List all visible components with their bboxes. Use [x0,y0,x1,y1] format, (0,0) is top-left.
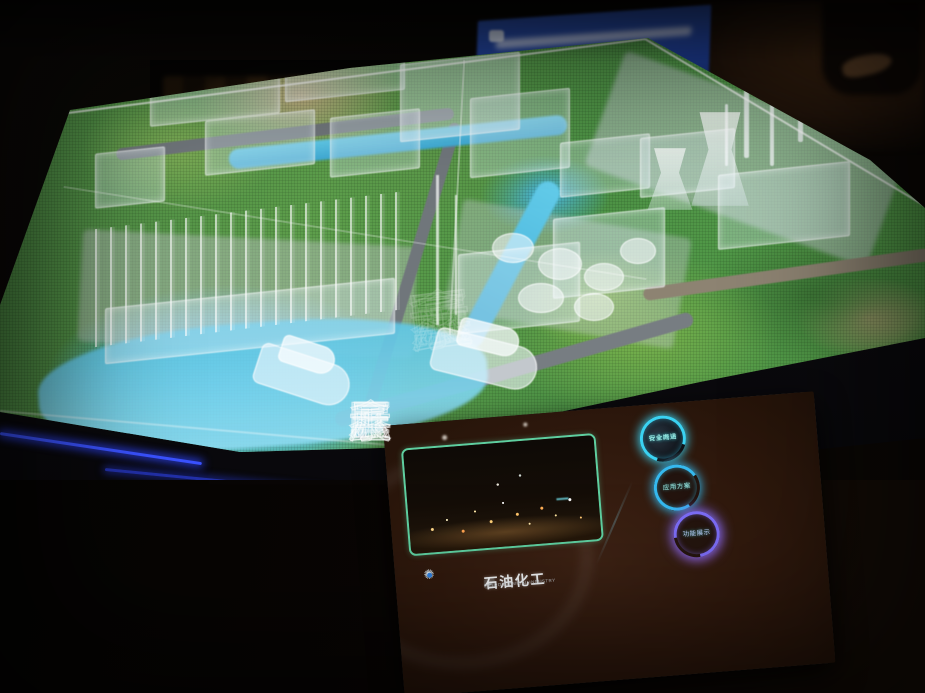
watermark-char: 示 [348,398,392,448]
acrylic-building [205,109,315,176]
menu-button-application-plan[interactable]: 应用方案 [650,461,704,515]
person-silhouette [822,0,922,95]
button-label: 应用方案 [663,483,692,493]
acrylic-building [470,88,570,179]
panel-logo [489,30,504,42]
gear-icon[interactable]: ✺ [420,566,437,583]
acrylic-building [560,133,650,197]
menu-button-industry-overview[interactable]: 行业内涵 安全概述 [632,407,695,470]
acrylic-building [330,108,420,177]
watermark-char: 示 [404,279,477,366]
button-label: 安全概述 [649,433,678,443]
button-label: 功能展示 [682,529,711,539]
exhibition-scene: 鑫 匠 展 示 行业内涵 安全概述 [0,0,925,693]
photo-watermark: 鑫 匠 展 示 [348,398,608,454]
